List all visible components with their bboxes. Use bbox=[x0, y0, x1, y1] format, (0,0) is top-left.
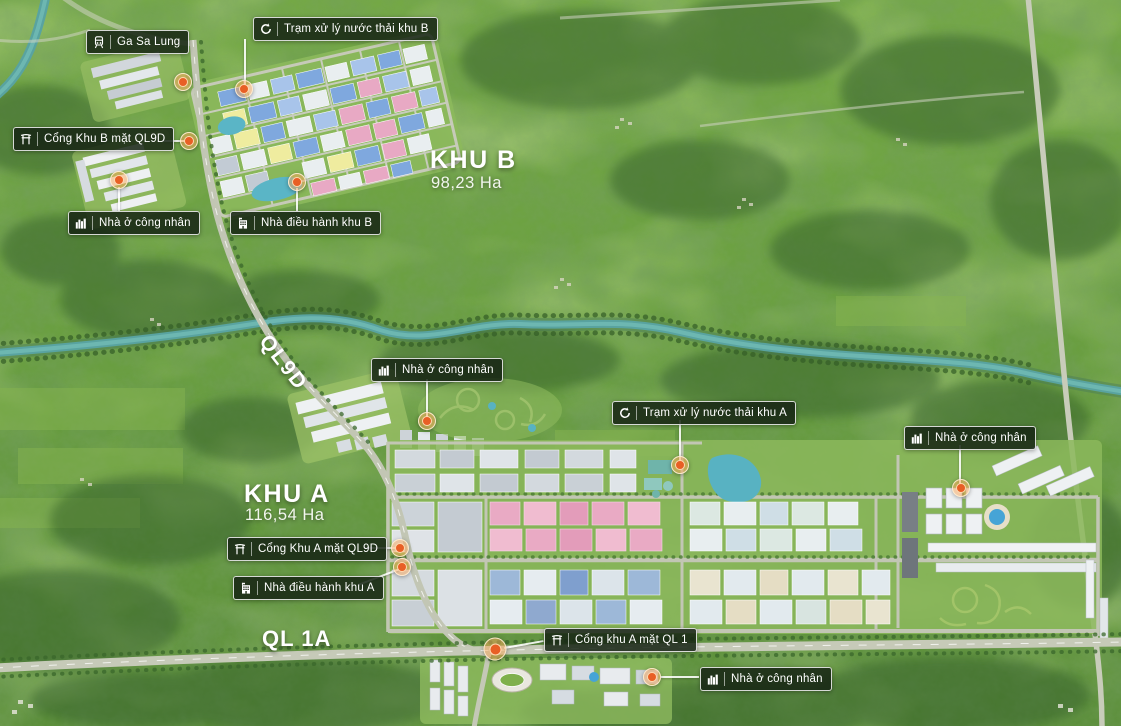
road-label-ql1a: QL 1A bbox=[262, 626, 331, 652]
callout-label: Nhà ở công nhân bbox=[935, 428, 1027, 448]
office-icon bbox=[237, 216, 255, 230]
callout-line bbox=[679, 420, 681, 461]
gate-icon bbox=[20, 132, 38, 146]
callout-line bbox=[504, 640, 544, 648]
train-icon bbox=[93, 35, 111, 49]
office-icon bbox=[240, 581, 258, 595]
callout-tram-xu-ly-khu-b[interactable]: Trạm xử lý nước thải khu B bbox=[253, 17, 438, 41]
buildings-icon bbox=[707, 672, 725, 686]
callout-nha-o-cong-nhan-duoi[interactable]: Nhà ở công nhân bbox=[700, 667, 832, 691]
callout-nha-dieu-hanh-khu-a[interactable]: Nhà điều hành khu A bbox=[233, 576, 384, 600]
buildings-icon bbox=[911, 431, 929, 445]
road-label-ql9d: QL9D bbox=[236, 316, 329, 411]
callout-label: Nhà điều hành khu B bbox=[261, 213, 372, 233]
gate-icon bbox=[234, 542, 252, 556]
callout-ga-sa-lung[interactable]: Ga Sa Lung bbox=[86, 30, 189, 54]
callout-line bbox=[118, 187, 120, 211]
callout-cong-khu-b[interactable]: Cổng Khu B mặt QL9D bbox=[13, 127, 174, 151]
marker-cong-khu-a-ql1[interactable] bbox=[484, 638, 507, 661]
buildings-icon bbox=[75, 216, 93, 230]
marker-nha-o-cong-nhan-giua[interactable] bbox=[418, 412, 436, 430]
buildings-icon bbox=[378, 363, 396, 377]
marker-nha-o-cong-nhan-phai[interactable] bbox=[952, 479, 970, 497]
callout-label: Cổng Khu A mặt QL9D bbox=[258, 539, 378, 559]
callout-label: Ga Sa Lung bbox=[117, 32, 180, 52]
marker-tram-xu-ly-khu-b[interactable] bbox=[235, 80, 253, 98]
marker-ga-sa-lung[interactable] bbox=[174, 73, 192, 91]
marker-tram-xu-ly-khu-a[interactable] bbox=[671, 456, 689, 474]
callout-line bbox=[244, 39, 246, 85]
callout-label: Cổng khu A mặt QL 1 bbox=[575, 630, 688, 650]
recycle-icon bbox=[260, 22, 278, 36]
marker-cong-khu-a-ql9d[interactable] bbox=[391, 539, 409, 557]
callout-label: Trạm xử lý nước thải khu B bbox=[284, 19, 429, 39]
marker-nha-o-cong-nhan-khu-b[interactable] bbox=[110, 171, 128, 189]
marker-nha-dieu-hanh-khu-b[interactable] bbox=[288, 173, 306, 191]
callout-line bbox=[661, 676, 699, 678]
zone-title-khu-b: KHU B bbox=[430, 146, 517, 175]
callout-label: Nhà điều hành khu A bbox=[264, 578, 375, 598]
marker-nha-dieu-hanh-khu-a[interactable] bbox=[393, 558, 411, 576]
callout-label: Nhà ở công nhân bbox=[99, 213, 191, 233]
marker-nha-o-cong-nhan-duoi[interactable] bbox=[643, 668, 661, 686]
callout-nha-o-cong-nhan-giua[interactable]: Nhà ở công nhân bbox=[371, 358, 503, 382]
callout-line bbox=[296, 188, 298, 211]
callout-cong-khu-a-ql1[interactable]: Cổng khu A mặt QL 1 bbox=[544, 628, 697, 652]
annotation-overlay: Ga Sa Lung Trạm xử lý nước thải khu B Cổ… bbox=[0, 0, 1121, 726]
callout-label: Nhà ở công nhân bbox=[731, 669, 823, 689]
callout-nha-o-cong-nhan-khu-b[interactable]: Nhà ở công nhân bbox=[68, 211, 200, 235]
zone-area-khu-a: 116,54 Ha bbox=[245, 506, 324, 525]
recycle-icon bbox=[619, 406, 637, 420]
zone-area-khu-b: 98,23 Ha bbox=[431, 174, 502, 193]
callout-label: Trạm xử lý nước thải khu A bbox=[643, 403, 787, 423]
masterplan-map: Ga Sa Lung Trạm xử lý nước thải khu B Cổ… bbox=[0, 0, 1121, 726]
callout-label: Nhà ở công nhân bbox=[402, 360, 494, 380]
callout-tram-xu-ly-khu-a[interactable]: Trạm xử lý nước thải khu A bbox=[612, 401, 796, 425]
marker-cong-khu-b[interactable] bbox=[180, 132, 198, 150]
callout-label: Cổng Khu B mặt QL9D bbox=[44, 129, 165, 149]
callout-nha-o-cong-nhan-phai[interactable]: Nhà ở công nhân bbox=[904, 426, 1036, 450]
gate-icon bbox=[551, 633, 569, 647]
callout-cong-khu-a-ql9d[interactable]: Cổng Khu A mặt QL9D bbox=[227, 537, 387, 561]
callout-nha-dieu-hanh-khu-b[interactable]: Nhà điều hành khu B bbox=[230, 211, 381, 235]
zone-title-khu-a: KHU A bbox=[244, 480, 330, 509]
